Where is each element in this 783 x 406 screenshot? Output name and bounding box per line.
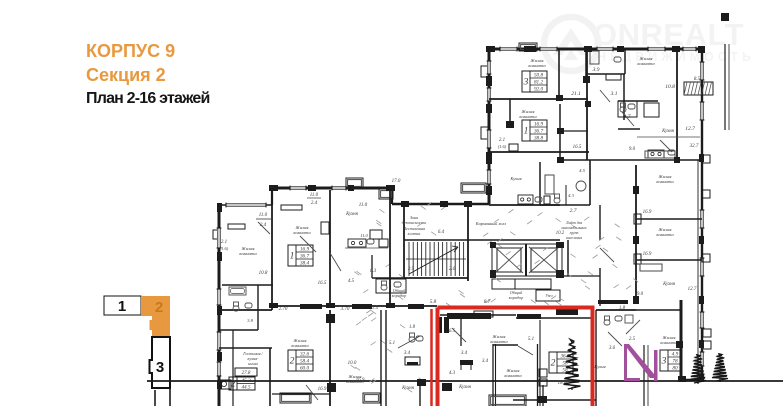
svg-text:Секция 2: Секция 2 xyxy=(86,65,166,85)
svg-text:36.7: 36.7 xyxy=(300,253,309,259)
svg-text:50.8: 50.8 xyxy=(534,72,543,78)
svg-text:Лифт для: Лифт для xyxy=(565,221,582,225)
svg-text:ниша: ниша xyxy=(248,361,257,366)
svg-text:11.0: 11.0 xyxy=(359,203,368,208)
svg-text:2.6: 2.6 xyxy=(449,267,456,272)
svg-text:Кухня: Кухня xyxy=(509,176,521,181)
svg-text:Кухня: Кухня xyxy=(345,212,359,217)
svg-text:16.5: 16.5 xyxy=(573,145,582,150)
svg-text:27.8: 27.8 xyxy=(242,371,251,376)
svg-text:4.5: 4.5 xyxy=(579,168,585,173)
svg-text:комната: комната xyxy=(490,339,508,344)
svg-text:2.7: 2.7 xyxy=(570,208,577,214)
svg-text:5.1: 5.1 xyxy=(528,337,534,342)
svg-text:населения: населения xyxy=(566,236,582,240)
svg-text:ONREALT: ONREALT xyxy=(593,17,744,52)
svg-text:комната: комната xyxy=(293,230,311,235)
svg-text:комната: комната xyxy=(656,232,674,237)
svg-text:Кухня: Кухня xyxy=(401,386,415,391)
svg-text:комната: комната xyxy=(291,343,309,348)
svg-text:3.4: 3.4 xyxy=(482,359,489,364)
svg-text:комната: комната xyxy=(660,340,678,345)
svg-text:1.8: 1.8 xyxy=(409,325,416,330)
svg-text:78: 78 xyxy=(672,358,678,364)
svg-text:10.0: 10.0 xyxy=(348,361,357,366)
svg-text:6.3: 6.3 xyxy=(370,269,377,274)
svg-text:80: 80 xyxy=(672,365,678,371)
svg-text:1: 1 xyxy=(118,298,126,315)
svg-text:комната: комната xyxy=(239,251,257,256)
svg-text:58.4: 58.4 xyxy=(300,357,309,364)
svg-text:44.5: 44.5 xyxy=(241,383,250,390)
svg-text:Кухня: Кухня xyxy=(458,385,472,390)
svg-text:3.1: 3.1 xyxy=(610,91,618,97)
svg-text:17.0: 17.0 xyxy=(392,179,401,184)
svg-text:КОРПУС 9: КОРПУС 9 xyxy=(86,41,175,61)
svg-text:групп: групп xyxy=(570,231,579,235)
svg-text:3.6: 3.6 xyxy=(609,346,616,351)
svg-text:16.5: 16.5 xyxy=(318,281,327,286)
svg-text:45.2: 45.2 xyxy=(241,377,250,384)
svg-text:2: 2 xyxy=(551,359,556,369)
svg-text:3.70: 3.70 xyxy=(341,307,350,312)
svg-text:10.8: 10.8 xyxy=(259,271,268,276)
svg-text:2: 2 xyxy=(155,299,163,316)
svg-text:92.0: 92.0 xyxy=(534,86,543,92)
svg-text:2.1: 2.1 xyxy=(221,240,227,245)
svg-text:12.7: 12.7 xyxy=(685,126,695,132)
svg-text:План 2-16 этажей: План 2-16 этажей xyxy=(86,90,210,107)
svg-text:16.9: 16.9 xyxy=(300,246,309,252)
svg-text:3: 3 xyxy=(661,357,667,367)
svg-text:3.9: 3.9 xyxy=(592,67,600,73)
svg-text:коридор: коридор xyxy=(392,293,406,298)
svg-text:16.9: 16.9 xyxy=(356,378,365,383)
svg-text:3: 3 xyxy=(156,359,164,376)
svg-text:16.9: 16.9 xyxy=(534,121,543,127)
svg-text:3: 3 xyxy=(523,78,529,88)
svg-text:2.70: 2.70 xyxy=(279,307,288,312)
svg-text:1.8: 1.8 xyxy=(619,306,626,311)
svg-text:5.8: 5.8 xyxy=(430,299,437,305)
svg-text:4.5: 4.5 xyxy=(348,279,355,284)
svg-text:4.3: 4.3 xyxy=(449,371,456,376)
svg-text:2: 2 xyxy=(290,357,295,367)
svg-text:комната: комната xyxy=(528,63,546,68)
svg-text:12.7: 12.7 xyxy=(688,287,697,292)
svg-text:16.9: 16.9 xyxy=(643,210,652,215)
svg-text:Кухня: Кухня xyxy=(662,282,676,287)
svg-text:3.4: 3.4 xyxy=(461,351,468,356)
svg-text:8.5: 8.5 xyxy=(694,77,701,82)
svg-text:клетка: клетка xyxy=(408,231,421,236)
svg-text:4.9: 4.9 xyxy=(672,350,679,357)
svg-text:2.5: 2.5 xyxy=(629,337,636,342)
svg-text:32.6: 32.6 xyxy=(300,351,309,357)
svg-text:10.8: 10.8 xyxy=(665,84,675,90)
svg-text:11.0: 11.0 xyxy=(310,193,319,198)
svg-text:Кухня: Кухня xyxy=(661,129,675,134)
svg-text:11.0: 11.0 xyxy=(360,233,368,238)
svg-text:1.5: 1.5 xyxy=(372,306,379,311)
svg-text:81.2: 81.2 xyxy=(534,79,543,85)
svg-text:1: 1 xyxy=(290,252,295,262)
svg-text:32.7: 32.7 xyxy=(690,144,699,149)
svg-text:11.0: 11.0 xyxy=(259,213,268,218)
svg-text:(1.6): (1.6) xyxy=(498,144,507,149)
svg-text:8.7: 8.7 xyxy=(484,299,491,305)
svg-text:60.0: 60.0 xyxy=(300,365,309,371)
svg-text:4.3: 4.3 xyxy=(568,193,574,198)
svg-text:комната: комната xyxy=(519,114,537,119)
svg-text:5.1: 5.1 xyxy=(389,341,395,346)
svg-text:комната: комната xyxy=(637,61,655,66)
svg-text:36.7: 36.7 xyxy=(534,128,543,134)
svg-text:Узел: Узел xyxy=(545,294,552,298)
svg-text:3.4: 3.4 xyxy=(404,351,411,356)
svg-text:безопасности: безопасности xyxy=(402,220,427,225)
svg-text:комната: комната xyxy=(656,179,674,184)
svg-text:21.1: 21.1 xyxy=(571,91,581,97)
svg-text:16.9: 16.9 xyxy=(318,387,327,392)
svg-text:коридор: коридор xyxy=(509,295,523,300)
svg-text:16.9: 16.9 xyxy=(643,252,652,257)
svg-text:2.4: 2.4 xyxy=(311,201,318,206)
svg-text:(1.6): (1.6) xyxy=(220,246,229,251)
svg-text:2.1: 2.1 xyxy=(499,138,505,143)
svg-text:9.0: 9.0 xyxy=(629,147,636,152)
svg-text:комната: комната xyxy=(504,373,522,378)
svg-text:2.5: 2.5 xyxy=(408,267,415,272)
svg-text:38.8: 38.8 xyxy=(534,135,543,141)
svg-text:38.4: 38.4 xyxy=(300,259,309,266)
svg-text:Карманный холл: Карманный холл xyxy=(475,221,507,226)
svg-text:6.5: 6.5 xyxy=(449,329,456,334)
svg-text:6.4: 6.4 xyxy=(438,230,445,235)
svg-text:1: 1 xyxy=(524,127,529,137)
svg-text:10.2: 10.2 xyxy=(556,231,565,236)
svg-text:Кухня: Кухня xyxy=(593,364,605,369)
svg-text:3.8: 3.8 xyxy=(247,318,253,323)
